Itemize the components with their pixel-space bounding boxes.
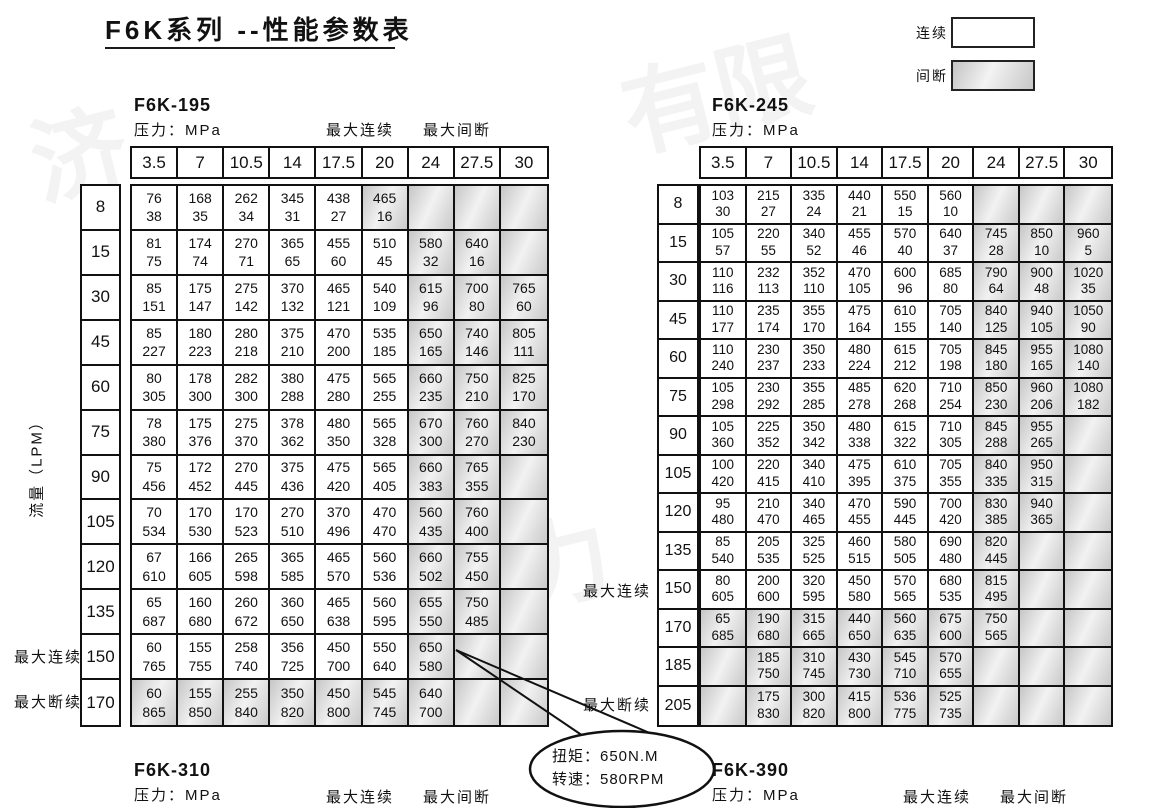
- cell-torque-value: 840: [985, 303, 1008, 319]
- cell-speed-value: 355: [465, 477, 488, 495]
- legend-intermittent-label: 间断: [916, 66, 948, 86]
- flow-row-header: 170: [82, 680, 119, 725]
- cell-speed-value: 530: [188, 522, 211, 540]
- cell-torque-value: 450: [327, 684, 350, 702]
- cell-torque-value: 215: [757, 188, 780, 204]
- cell-torque-value: 710: [939, 380, 962, 396]
- data-cell: 282300: [224, 366, 270, 411]
- flow-row-header: 150: [659, 571, 697, 610]
- data-cell: 755450: [455, 545, 501, 590]
- cell-torque-value: 380: [281, 369, 304, 387]
- data-cell: 155850: [178, 680, 224, 725]
- cell-torque-value: 265: [235, 548, 258, 566]
- data-cell: 352110: [792, 263, 838, 302]
- pressure-column-header: 17.5: [883, 148, 929, 177]
- data-cell: 68580: [929, 263, 975, 302]
- cell-torque-value: 105: [712, 419, 735, 435]
- data-cell: 100420: [701, 456, 747, 495]
- cell-torque-value: 950: [1030, 457, 1053, 473]
- cell-speed-value: 600: [939, 628, 962, 644]
- data-cell: [1020, 571, 1066, 610]
- cell-torque-value: 640: [939, 226, 962, 242]
- data-cell: 840125: [974, 302, 1020, 341]
- cell-speed-value: 355: [939, 474, 962, 490]
- flow-row-header: 75: [82, 411, 119, 456]
- data-cell: 51045: [363, 231, 409, 276]
- cell-speed-value: 598: [235, 567, 258, 585]
- cell-torque-value: 760: [465, 414, 488, 432]
- cell-torque-value: 282: [235, 369, 258, 387]
- data-cell: 750565: [974, 610, 1020, 649]
- data-cell: 9605: [1065, 225, 1111, 264]
- data-cell: 705355: [929, 456, 975, 495]
- data-cell: 67610: [132, 545, 178, 590]
- data-cell: 450800: [316, 680, 362, 725]
- data-cell: 110240: [701, 340, 747, 379]
- cell-torque-value: 700: [939, 496, 962, 512]
- data-cell: 805111: [501, 321, 547, 366]
- cell-speed-value: 595: [373, 612, 396, 630]
- data-cell: 110177: [701, 302, 747, 341]
- flow-axis-label: 流量（LPM）: [26, 366, 47, 566]
- data-cell: [701, 648, 747, 687]
- cell-speed-value: 278: [848, 397, 871, 413]
- cell-torque-value: 960: [1077, 226, 1100, 242]
- cell-torque-value: 440: [848, 188, 871, 204]
- data-cell: 350820: [270, 680, 316, 725]
- cell-speed-value: 830: [757, 706, 780, 722]
- cell-speed-value: 31: [285, 207, 301, 225]
- data-cell: 470455: [838, 494, 884, 533]
- table1-data-grid: 7638168352623434531438274651681751747427…: [130, 184, 549, 727]
- cell-torque-value: 565: [373, 458, 396, 476]
- pressure-column-header: 3.5: [132, 148, 178, 177]
- flow-row-header: 30: [659, 263, 697, 302]
- cell-torque-value: 615: [894, 342, 917, 358]
- cell-speed-value: 288: [281, 387, 304, 405]
- cell-torque-value: 365: [281, 234, 304, 252]
- data-cell: 825170: [501, 366, 547, 411]
- cell-speed-value: 74: [192, 252, 208, 270]
- data-cell: 840230: [501, 411, 547, 456]
- cell-torque-value: 790: [985, 265, 1008, 281]
- cell-torque-value: 850: [985, 380, 1008, 396]
- cell-speed-value: 800: [327, 703, 350, 721]
- cell-torque-value: 655: [419, 593, 442, 611]
- cell-speed-value: 224: [848, 358, 871, 374]
- cell-torque-value: 1050: [1073, 303, 1103, 319]
- cell-speed-value: 255: [373, 387, 396, 405]
- cell-torque-value: 705: [939, 303, 962, 319]
- pressure-column-header: 30: [1065, 148, 1111, 177]
- cell-speed-value: 210: [281, 342, 304, 360]
- cell-torque-value: 485: [848, 380, 871, 396]
- cell-torque-value: 81: [146, 234, 162, 252]
- cell-torque-value: 178: [188, 369, 211, 387]
- cell-speed-value: 155: [894, 320, 917, 336]
- data-cell: 232113: [747, 263, 793, 302]
- flow-row-header: 75: [659, 379, 697, 418]
- pressure-column-header: 30: [501, 148, 547, 177]
- cell-speed-value: 80: [469, 297, 485, 315]
- data-cell: [1020, 687, 1066, 726]
- cell-torque-value: 580: [419, 234, 442, 252]
- cell-torque-value: 955: [1030, 419, 1053, 435]
- data-cell: [974, 648, 1020, 687]
- data-cell: 525735: [929, 687, 975, 726]
- cell-speed-value: 34: [238, 207, 254, 225]
- cell-torque-value: 270: [235, 234, 258, 252]
- cell-speed-value: 210: [465, 387, 488, 405]
- cell-speed-value: 495: [985, 589, 1008, 605]
- data-cell: 535185: [363, 321, 409, 366]
- cell-speed-value: 685: [712, 628, 735, 644]
- cell-speed-value: 635: [894, 628, 917, 644]
- data-cell: [1020, 648, 1066, 687]
- cell-speed-value: 585: [281, 567, 304, 585]
- cell-torque-value: 352: [803, 265, 826, 281]
- callout-torque: 扭矩：650N.M: [552, 745, 702, 768]
- cell-speed-value: 820: [803, 706, 826, 722]
- cell-speed-value: 665: [803, 628, 826, 644]
- footer-right-max-continuous: 最大连续: [903, 786, 971, 807]
- cell-torque-value: 300: [803, 689, 826, 705]
- data-cell: 560595: [363, 590, 409, 635]
- cell-speed-value: 65: [285, 252, 301, 270]
- cell-speed-value: 750: [757, 666, 780, 682]
- cell-speed-value: 535: [757, 551, 780, 567]
- cell-torque-value: 465: [373, 189, 396, 207]
- data-cell: 80305: [132, 366, 178, 411]
- cell-torque-value: 225: [757, 419, 780, 435]
- data-cell: [1020, 610, 1066, 649]
- data-cell: [501, 186, 547, 231]
- data-cell: [974, 687, 1020, 726]
- data-cell: 690480: [929, 533, 975, 572]
- cell-torque-value: 610: [894, 303, 917, 319]
- data-cell: 465638: [316, 590, 362, 635]
- legend-continuous-label: 连续: [916, 23, 948, 43]
- cell-speed-value: 496: [327, 522, 350, 540]
- data-cell: 450580: [838, 571, 884, 610]
- cell-torque-value: 166: [188, 548, 211, 566]
- data-cell: 270445: [224, 456, 270, 501]
- cell-speed-value: 710: [894, 666, 917, 682]
- cell-torque-value: 690: [939, 534, 962, 550]
- cell-speed-value: 523: [235, 522, 258, 540]
- cell-torque-value: 475: [327, 458, 350, 476]
- table1-max-continuous-label: 最大连续: [326, 119, 394, 140]
- data-cell: 700420: [929, 494, 975, 533]
- cell-torque-value: 85: [146, 324, 162, 342]
- cell-torque-value: 60: [146, 684, 162, 702]
- data-cell: 255840: [224, 680, 270, 725]
- cell-torque-value: 825: [512, 369, 535, 387]
- cell-torque-value: 680: [939, 573, 962, 589]
- pressure-column-header: 14: [270, 148, 316, 177]
- cell-torque-value: 475: [848, 457, 871, 473]
- cell-torque-value: 845: [985, 342, 1008, 358]
- data-cell: 475420: [316, 456, 362, 501]
- cell-speed-value: 385: [985, 512, 1008, 528]
- cell-torque-value: 750: [985, 611, 1008, 627]
- cell-speed-value: 445: [985, 551, 1008, 567]
- cell-speed-value: 735: [939, 706, 962, 722]
- data-cell: 90048: [1020, 263, 1066, 302]
- cell-speed-value: 745: [373, 703, 396, 721]
- cell-speed-value: 360: [712, 435, 735, 451]
- cell-speed-value: 565: [894, 589, 917, 605]
- cell-torque-value: 174: [188, 234, 211, 252]
- flow-row-header: 8: [82, 186, 119, 231]
- cell-speed-value: 227: [142, 342, 165, 360]
- legend-continuous-swatch: [951, 17, 1035, 48]
- cell-speed-value: 170: [512, 387, 535, 405]
- cell-torque-value: 95: [715, 496, 730, 512]
- cell-torque-value: 685: [939, 265, 962, 281]
- cell-speed-value: 700: [419, 703, 442, 721]
- data-cell: 175376: [178, 411, 224, 456]
- cell-torque-value: 275: [235, 414, 258, 432]
- data-cell: 105360: [701, 417, 747, 456]
- data-cell: 570655: [929, 648, 975, 687]
- data-cell: 180223: [178, 321, 224, 366]
- data-cell: [409, 186, 455, 231]
- cell-torque-value: 455: [327, 234, 350, 252]
- cell-torque-value: 360: [281, 593, 304, 611]
- cell-speed-value: 113: [758, 281, 780, 297]
- data-cell: 80605: [701, 571, 747, 610]
- cell-torque-value: 560: [939, 188, 962, 204]
- cell-speed-value: 352: [757, 435, 780, 451]
- footer-left-model: F6K-310: [134, 760, 211, 781]
- cell-speed-value: 27: [331, 207, 347, 225]
- data-cell: 325525: [792, 533, 838, 572]
- data-cell: 940365: [1020, 494, 1066, 533]
- cell-torque-value: 78: [146, 414, 162, 432]
- cell-speed-value: 315: [1030, 474, 1053, 490]
- cell-torque-value: 470: [848, 265, 871, 281]
- cell-torque-value: 760: [465, 503, 488, 521]
- data-cell: 280218: [224, 321, 270, 366]
- data-cell: 45546: [838, 225, 884, 264]
- cell-torque-value: 560: [373, 593, 396, 611]
- data-cell: 610375: [883, 456, 929, 495]
- cell-speed-value: 52: [806, 243, 821, 259]
- data-cell: 225352: [747, 417, 793, 456]
- cell-torque-value: 258: [235, 638, 258, 656]
- data-cell: 105298: [701, 379, 747, 418]
- cell-speed-value: 535: [939, 589, 962, 605]
- cell-speed-value: 700: [327, 657, 350, 675]
- pressure-column-header: 20: [363, 148, 409, 177]
- data-cell: 46516: [363, 186, 409, 231]
- cell-speed-value: 71: [238, 252, 254, 270]
- cell-torque-value: 415: [848, 689, 871, 705]
- cell-speed-value: 445: [894, 512, 917, 528]
- data-cell: 175830: [747, 687, 793, 726]
- data-cell: 615322: [883, 417, 929, 456]
- cell-torque-value: 210: [757, 496, 780, 512]
- data-cell: 340410: [792, 456, 838, 495]
- cell-speed-value: 146: [465, 342, 488, 360]
- cell-speed-value: 565: [985, 628, 1008, 644]
- cell-torque-value: 230: [757, 342, 780, 358]
- cell-speed-value: 240: [712, 358, 735, 374]
- cell-speed-value: 206: [1030, 397, 1053, 413]
- cell-speed-value: 165: [1030, 358, 1053, 374]
- cell-speed-value: 465: [803, 512, 826, 528]
- data-cell: 830385: [974, 494, 1020, 533]
- callout-speed: 转速：580RPM: [552, 768, 702, 791]
- data-cell: [1020, 533, 1066, 572]
- cell-speed-value: 298: [712, 397, 735, 413]
- cell-speed-value: 775: [894, 706, 917, 722]
- cell-torque-value: 475: [848, 303, 871, 319]
- cell-torque-value: 255: [235, 684, 258, 702]
- cell-torque-value: 185: [757, 650, 780, 666]
- cell-torque-value: 378: [281, 414, 304, 432]
- cell-speed-value: 300: [188, 387, 211, 405]
- data-cell: 33524: [792, 186, 838, 225]
- data-cell: 760400: [455, 500, 501, 545]
- data-cell: 650165: [409, 321, 455, 366]
- cell-speed-value: 410: [803, 474, 826, 490]
- cell-torque-value: 320: [803, 573, 826, 589]
- data-cell: 760270: [455, 411, 501, 456]
- cell-torque-value: 190: [757, 611, 780, 627]
- cell-torque-value: 370: [327, 503, 350, 521]
- flow-row-header: 135: [82, 590, 119, 635]
- flow-row-header: 205: [659, 687, 697, 726]
- data-cell: 170523: [224, 500, 270, 545]
- cell-torque-value: 470: [848, 496, 871, 512]
- data-cell: 315665: [792, 610, 838, 649]
- data-cell: 540109: [363, 276, 409, 321]
- data-cell: 360650: [270, 590, 316, 635]
- cell-speed-value: 165: [419, 342, 442, 360]
- footer-left-max-continuous: 最大连续: [326, 786, 394, 807]
- cell-torque-value: 375: [281, 324, 304, 342]
- cell-speed-value: 540: [712, 551, 735, 567]
- flow-row-header: 15: [82, 231, 119, 276]
- data-cell: 260672: [224, 590, 270, 635]
- data-cell: 365585: [270, 545, 316, 590]
- cell-torque-value: 350: [803, 419, 826, 435]
- cell-speed-value: 375: [894, 474, 917, 490]
- cell-torque-value: 470: [327, 324, 350, 342]
- cell-torque-value: 565: [373, 414, 396, 432]
- cell-speed-value: 288: [985, 435, 1008, 451]
- data-cell: 230237: [747, 340, 793, 379]
- cell-torque-value: 340: [803, 226, 826, 242]
- cell-speed-value: 96: [423, 297, 439, 315]
- cell-torque-value: 465: [327, 548, 350, 566]
- cell-torque-value: 840: [512, 414, 535, 432]
- cell-speed-value: 170: [803, 320, 826, 336]
- cell-torque-value: 168: [188, 189, 211, 207]
- data-cell: 56010: [929, 186, 975, 225]
- cell-speed-value: 10: [943, 204, 958, 220]
- data-cell: 258740: [224, 635, 270, 680]
- data-cell: [1065, 687, 1111, 726]
- data-cell: [501, 635, 547, 680]
- data-cell: 205535: [747, 533, 793, 572]
- cell-torque-value: 830: [985, 496, 1008, 512]
- cell-speed-value: 180: [985, 358, 1008, 374]
- cell-torque-value: 560: [894, 611, 917, 627]
- data-cell: 580505: [883, 533, 929, 572]
- cell-torque-value: 175: [757, 689, 780, 705]
- data-cell: 350342: [792, 417, 838, 456]
- data-cell: 465570: [316, 545, 362, 590]
- data-cell: 545710: [883, 648, 929, 687]
- data-cell: 34531: [270, 186, 316, 231]
- cell-torque-value: 815: [985, 573, 1008, 589]
- cell-speed-value: 212: [894, 358, 917, 374]
- data-cell: 340465: [792, 494, 838, 533]
- cell-speed-value: 450: [465, 567, 488, 585]
- cell-speed-value: 650: [848, 628, 871, 644]
- cell-torque-value: 940: [1030, 303, 1053, 319]
- cell-speed-value: 605: [188, 567, 211, 585]
- data-cell: 60865: [132, 680, 178, 725]
- cell-speed-value: 147: [188, 297, 211, 315]
- cell-speed-value: 35: [1081, 281, 1096, 297]
- cell-torque-value: 750: [465, 593, 488, 611]
- table1-side-max-continuous: 最大连续: [14, 646, 82, 667]
- data-cell: 440650: [838, 610, 884, 649]
- cell-torque-value: 550: [894, 188, 917, 204]
- cell-torque-value: 350: [803, 342, 826, 358]
- cell-speed-value: 15: [897, 204, 912, 220]
- cell-torque-value: 610: [894, 457, 917, 473]
- data-cell: 565328: [363, 411, 409, 456]
- table2-model: F6K-245: [712, 95, 789, 116]
- data-cell: 356725: [270, 635, 316, 680]
- data-cell: 85010: [1020, 225, 1066, 264]
- cell-torque-value: 105: [712, 380, 735, 396]
- cell-speed-value: 140: [1077, 358, 1100, 374]
- flow-row-header: 60: [659, 340, 697, 379]
- data-cell: 36565: [270, 231, 316, 276]
- data-cell: 815495: [974, 571, 1020, 610]
- cell-torque-value: 545: [373, 684, 396, 702]
- cell-speed-value: 16: [469, 252, 485, 270]
- data-cell: [501, 231, 547, 276]
- cell-torque-value: 475: [327, 369, 350, 387]
- pressure-column-header: 7: [178, 148, 224, 177]
- page-title: F6K系列 --性能参数表: [105, 10, 413, 47]
- cell-torque-value: 640: [419, 684, 442, 702]
- cell-speed-value: 335: [985, 474, 1008, 490]
- cell-speed-value: 470: [373, 522, 396, 540]
- cell-speed-value: 37: [943, 243, 958, 259]
- data-cell: 590445: [883, 494, 929, 533]
- cell-speed-value: 268: [894, 397, 917, 413]
- data-cell: 475164: [838, 302, 884, 341]
- cell-speed-value: 380: [142, 432, 165, 450]
- cell-speed-value: 292: [757, 397, 780, 413]
- cell-speed-value: 435: [419, 522, 442, 540]
- table1-side-max-discontinuous: 最大断续: [14, 691, 82, 712]
- data-cell: 17474: [178, 231, 224, 276]
- data-cell: 10557: [701, 225, 747, 264]
- cell-speed-value: 230: [512, 432, 535, 450]
- cell-speed-value: 395: [848, 474, 871, 490]
- cell-torque-value: 205: [757, 534, 780, 550]
- data-cell: 200600: [747, 571, 793, 610]
